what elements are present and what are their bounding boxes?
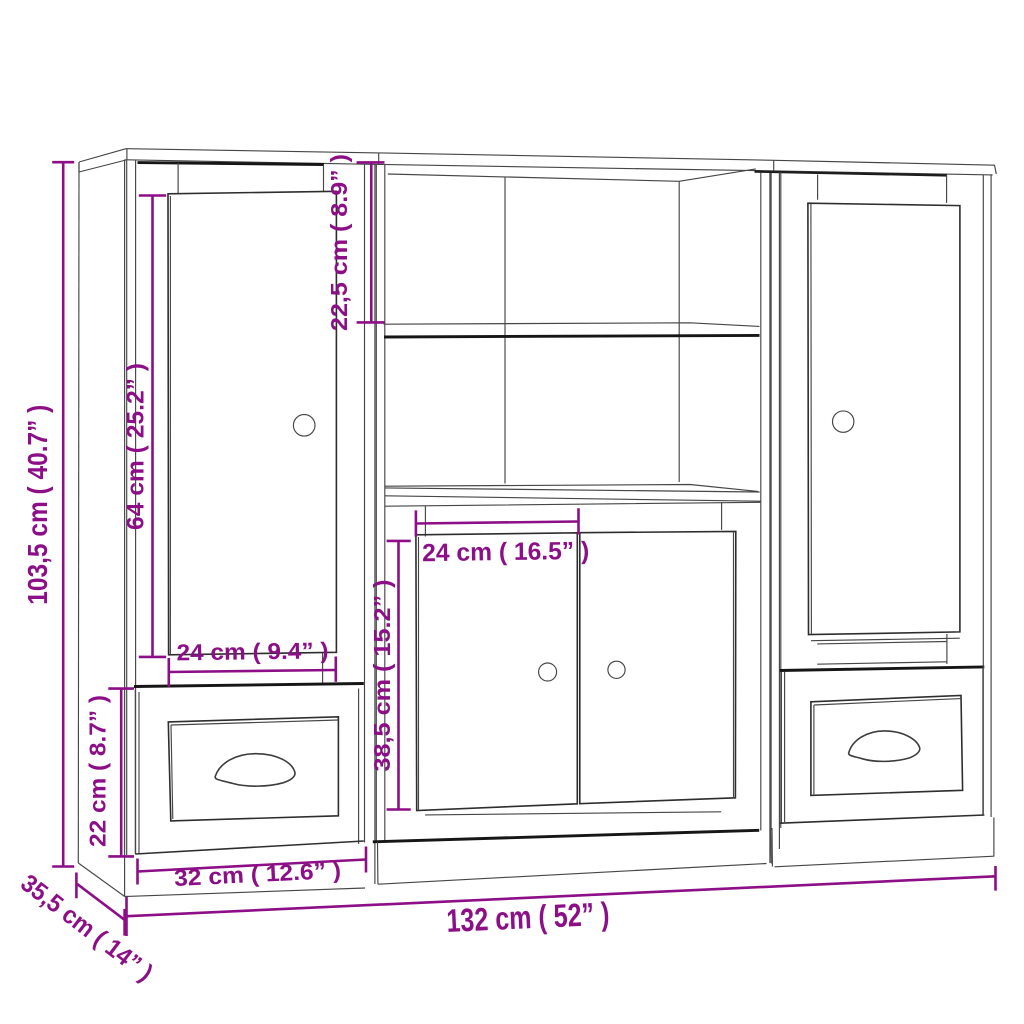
svg-text:38,5 cm ( 15.2” ): 38,5 cm ( 15.2” ) bbox=[369, 580, 395, 772]
svg-text:132 cm ( 52” ): 132 cm ( 52” ) bbox=[446, 896, 610, 939]
svg-text:103,5 cm ( 40.7” ): 103,5 cm ( 40.7” ) bbox=[22, 405, 53, 605]
svg-text:24 cm ( 9.4” ): 24 cm ( 9.4” ) bbox=[176, 637, 328, 665]
svg-text:22,5 cm ( 8.9” ): 22,5 cm ( 8.9” ) bbox=[326, 154, 352, 331]
svg-text:64 cm ( 25.2” ): 64 cm ( 25.2” ) bbox=[123, 363, 150, 530]
svg-text:24 cm ( 16.5” ): 24 cm ( 16.5” ) bbox=[422, 537, 589, 567]
svg-text:22 cm ( 8.7” ): 22 cm ( 8.7” ) bbox=[85, 695, 111, 847]
